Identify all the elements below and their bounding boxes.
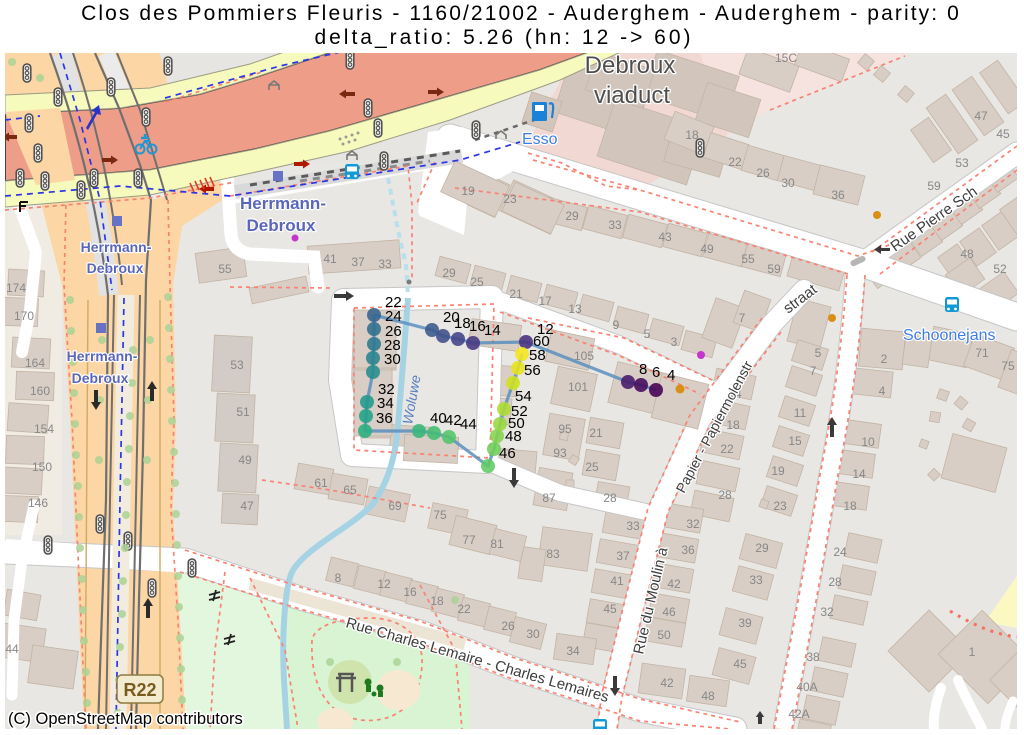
svg-text:12: 12 — [377, 577, 391, 591]
svg-text:25: 25 — [470, 275, 484, 289]
svg-text:81: 81 — [490, 537, 504, 551]
svg-text:Debroux: Debroux — [585, 53, 676, 79]
svg-text:41: 41 — [323, 252, 337, 266]
svg-text:Debroux: Debroux — [247, 216, 317, 235]
svg-text:47: 47 — [240, 499, 254, 513]
svg-text:5: 5 — [815, 346, 822, 360]
svg-text:174: 174 — [6, 281, 26, 295]
svg-text:3: 3 — [671, 335, 678, 349]
svg-text:6: 6 — [652, 364, 660, 381]
svg-text:5: 5 — [644, 327, 651, 341]
svg-text:26: 26 — [756, 166, 770, 180]
svg-text:21: 21 — [589, 426, 603, 440]
svg-text:24: 24 — [833, 545, 847, 559]
svg-text:13: 13 — [568, 302, 582, 316]
svg-text:7: 7 — [739, 311, 746, 325]
svg-text:59: 59 — [927, 179, 941, 193]
svg-text:46: 46 — [662, 605, 676, 619]
svg-text:51: 51 — [236, 405, 250, 419]
svg-text:14: 14 — [484, 322, 501, 339]
svg-text:87: 87 — [542, 491, 556, 505]
svg-text:52: 52 — [511, 403, 528, 420]
svg-text:61: 61 — [314, 476, 328, 490]
svg-text:20: 20 — [443, 309, 460, 326]
svg-text:17: 17 — [538, 294, 552, 308]
svg-text:22: 22 — [720, 442, 734, 456]
svg-text:16: 16 — [403, 585, 417, 599]
svg-text:33: 33 — [749, 573, 763, 587]
svg-text:44: 44 — [460, 416, 477, 433]
svg-text:55: 55 — [741, 252, 755, 266]
svg-text:22: 22 — [457, 602, 471, 616]
svg-text:37: 37 — [351, 255, 365, 269]
svg-text:10: 10 — [861, 435, 875, 449]
svg-text:44: 44 — [5, 642, 19, 656]
svg-text:47: 47 — [974, 109, 988, 123]
svg-text:42A: 42A — [788, 707, 809, 721]
svg-text:19: 19 — [771, 464, 785, 478]
svg-text:37: 37 — [616, 549, 630, 563]
svg-text:46: 46 — [499, 445, 516, 462]
svg-text:65: 65 — [343, 483, 357, 497]
svg-text:32: 32 — [820, 605, 834, 619]
svg-text:95: 95 — [558, 422, 572, 436]
svg-text:1: 1 — [969, 645, 976, 659]
svg-text:30: 30 — [526, 627, 540, 641]
svg-text:Esso: Esso — [522, 131, 558, 148]
svg-text:56: 56 — [524, 362, 541, 379]
svg-text:40A: 40A — [796, 680, 817, 694]
svg-text:52: 52 — [993, 262, 1007, 276]
svg-text:146: 146 — [28, 496, 48, 510]
svg-text:160: 160 — [30, 384, 50, 398]
svg-text:38: 38 — [806, 650, 820, 664]
svg-text:101: 101 — [568, 380, 588, 394]
svg-text:93: 93 — [553, 446, 567, 460]
svg-text:23: 23 — [503, 192, 517, 206]
svg-text:9: 9 — [613, 318, 620, 332]
svg-text:28: 28 — [603, 491, 617, 505]
svg-text:15C: 15C — [775, 53, 797, 65]
svg-text:22: 22 — [728, 155, 742, 169]
svg-text:43: 43 — [658, 230, 672, 244]
svg-text:30: 30 — [781, 176, 795, 190]
svg-text:50: 50 — [657, 628, 671, 642]
svg-text:8: 8 — [335, 571, 342, 585]
svg-text:viaduct: viaduct — [594, 82, 670, 109]
svg-text:28: 28 — [828, 575, 842, 589]
svg-text:R22: R22 — [123, 680, 156, 700]
svg-text:4: 4 — [879, 384, 886, 398]
svg-text:(C) OpenStreetMap contributors: (C) OpenStreetMap contributors — [8, 710, 243, 728]
svg-text:23: 23 — [773, 499, 787, 513]
svg-text:18: 18 — [685, 128, 699, 142]
svg-text:36: 36 — [831, 188, 845, 202]
svg-text:18: 18 — [726, 418, 740, 432]
svg-text:Debroux: Debroux — [87, 260, 144, 276]
svg-text:154: 154 — [34, 422, 54, 436]
svg-text:Herrmann-: Herrmann- — [240, 194, 326, 213]
svg-text:21: 21 — [509, 287, 523, 301]
svg-text:49: 49 — [700, 242, 714, 256]
svg-text:45: 45 — [603, 602, 617, 616]
svg-text:42: 42 — [667, 577, 681, 591]
svg-text:41: 41 — [610, 574, 624, 588]
svg-text:150: 150 — [32, 460, 52, 474]
svg-text:60: 60 — [533, 333, 550, 350]
svg-text:53: 53 — [230, 358, 244, 372]
svg-text:59: 59 — [767, 262, 781, 276]
svg-text:18: 18 — [843, 499, 857, 513]
svg-text:48: 48 — [960, 247, 974, 261]
svg-text:32: 32 — [686, 517, 700, 531]
svg-text:71: 71 — [975, 346, 989, 360]
svg-text:15: 15 — [788, 434, 802, 448]
svg-text:29: 29 — [755, 541, 769, 555]
svg-text:26: 26 — [501, 619, 515, 633]
svg-text:8: 8 — [639, 361, 647, 378]
svg-text:53: 53 — [955, 156, 969, 170]
svg-text:34: 34 — [566, 644, 580, 658]
svg-text:83: 83 — [546, 547, 560, 561]
svg-text:45: 45 — [996, 127, 1010, 141]
svg-text:49: 49 — [238, 453, 252, 467]
svg-text:55: 55 — [218, 262, 232, 276]
svg-text:33: 33 — [378, 257, 392, 271]
svg-text:42: 42 — [660, 676, 674, 690]
svg-text:29: 29 — [442, 266, 456, 280]
svg-text:19: 19 — [461, 184, 475, 198]
svg-text:164: 164 — [25, 356, 45, 370]
svg-text:170: 170 — [14, 309, 34, 323]
svg-text:Herrmann-: Herrmann- — [81, 239, 152, 255]
svg-text:25: 25 — [585, 460, 599, 474]
svg-text:4: 4 — [667, 367, 675, 384]
svg-text:Schoonejans: Schoonejans — [903, 327, 996, 344]
svg-text:77: 77 — [462, 533, 476, 547]
svg-text:75: 75 — [433, 508, 447, 522]
svg-text:39: 39 — [738, 616, 752, 630]
svg-text:36: 36 — [681, 543, 695, 557]
svg-text:2: 2 — [881, 352, 888, 366]
svg-text:Debroux: Debroux — [72, 370, 129, 386]
svg-text:33: 33 — [608, 218, 622, 232]
svg-text:16: 16 — [469, 318, 486, 335]
svg-text:33: 33 — [626, 519, 640, 533]
svg-text:30: 30 — [384, 351, 401, 368]
svg-text:54: 54 — [515, 388, 532, 405]
svg-text:Herrmann-: Herrmann- — [67, 348, 138, 364]
svg-text:36: 36 — [376, 410, 393, 427]
svg-text:14: 14 — [852, 467, 866, 481]
svg-text:7: 7 — [810, 364, 817, 378]
svg-text:28: 28 — [718, 488, 732, 502]
svg-text:18: 18 — [430, 594, 444, 608]
svg-text:48: 48 — [701, 689, 715, 703]
svg-text:29: 29 — [565, 209, 579, 223]
svg-text:45: 45 — [733, 657, 747, 671]
svg-text:69: 69 — [388, 499, 402, 513]
svg-text:75: 75 — [1001, 359, 1015, 373]
svg-text:11: 11 — [794, 406, 807, 420]
